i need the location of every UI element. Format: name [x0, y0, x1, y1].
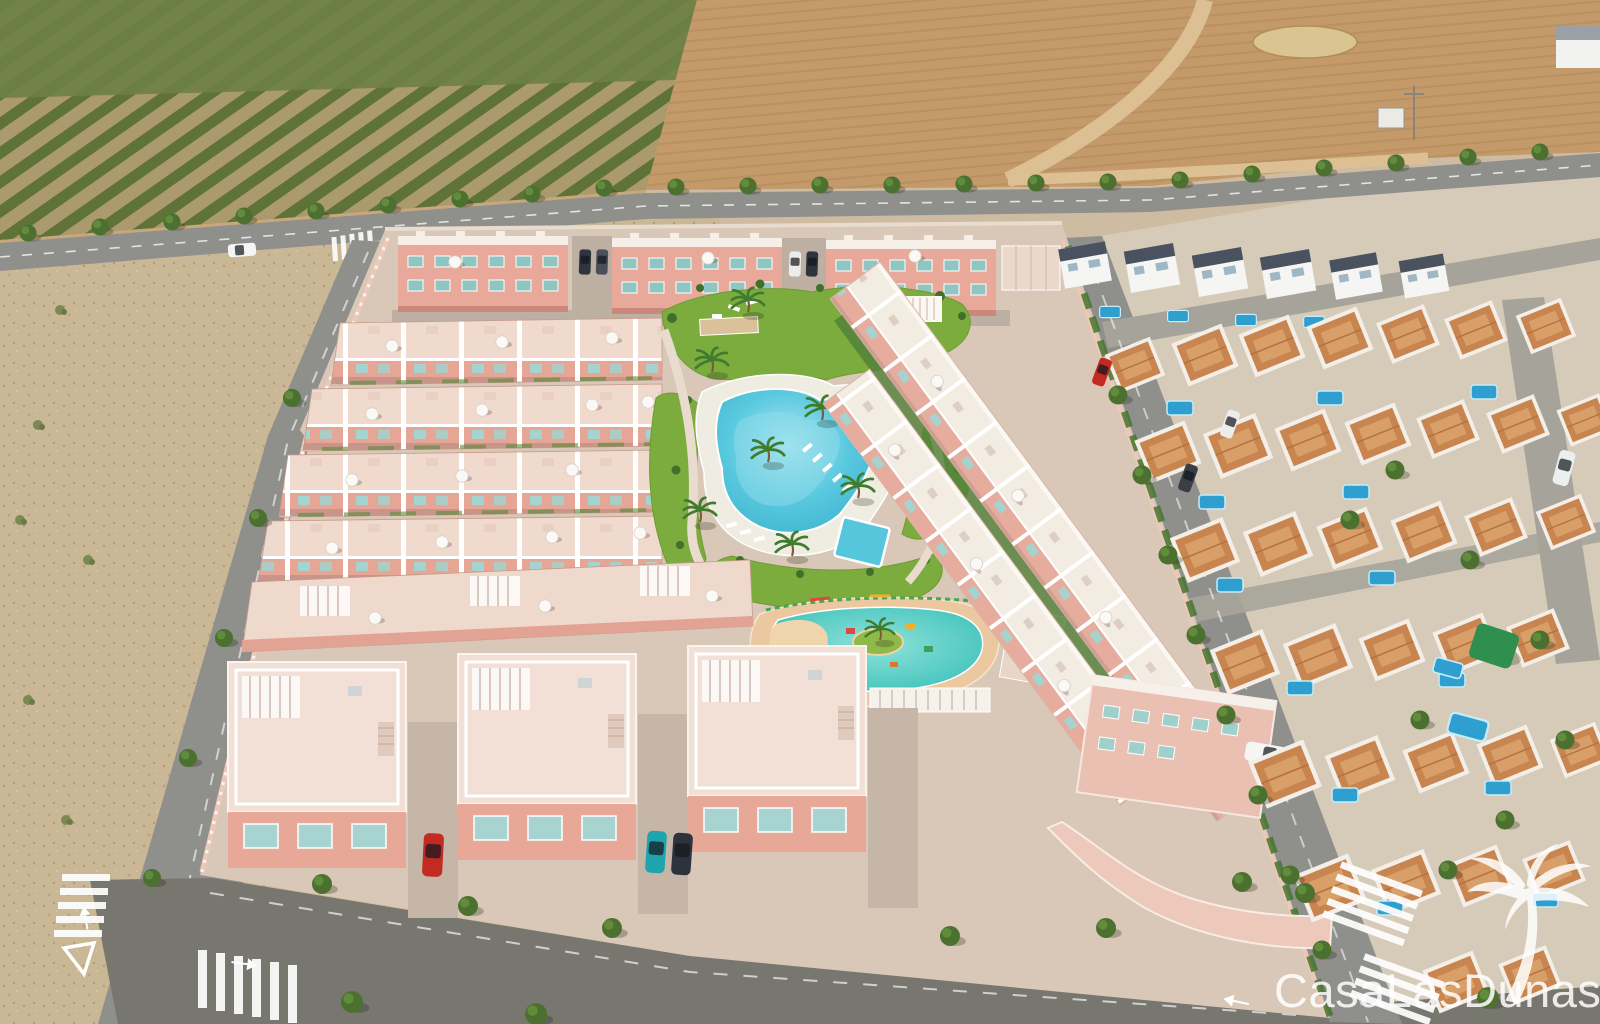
private-pool: [1168, 310, 1189, 321]
driveway: [638, 714, 688, 914]
house: [1399, 253, 1450, 298]
apartment-block: [398, 231, 568, 312]
straw-pile: [1253, 26, 1357, 58]
house: [1058, 241, 1112, 289]
private-pool: [1236, 314, 1257, 325]
driveway: [408, 722, 458, 918]
townhouse-row: [331, 318, 662, 385]
house: [1192, 247, 1249, 297]
townhouse-row: [303, 384, 662, 451]
scene-canvas: [0, 0, 1600, 1024]
driveway: [868, 708, 918, 908]
house: [1329, 252, 1383, 300]
house: [1124, 243, 1181, 293]
teal-car: [645, 830, 667, 873]
villa: [688, 646, 866, 852]
parked-car: [579, 249, 592, 275]
villa: [458, 654, 636, 860]
farmhouse: [1556, 26, 1600, 68]
white-car: [228, 243, 257, 258]
parked-car: [806, 251, 819, 277]
red-car: [422, 833, 444, 877]
villa: [228, 662, 406, 868]
parked-car: [596, 249, 609, 275]
field-hut: [1378, 108, 1404, 128]
private-pool: [1100, 306, 1121, 317]
townhouse-row: [279, 450, 662, 517]
parked-car: [789, 251, 802, 277]
aerial-render: CasaLasDunas: [0, 0, 1600, 1024]
house: [1260, 249, 1317, 299]
dark-car: [671, 832, 693, 875]
